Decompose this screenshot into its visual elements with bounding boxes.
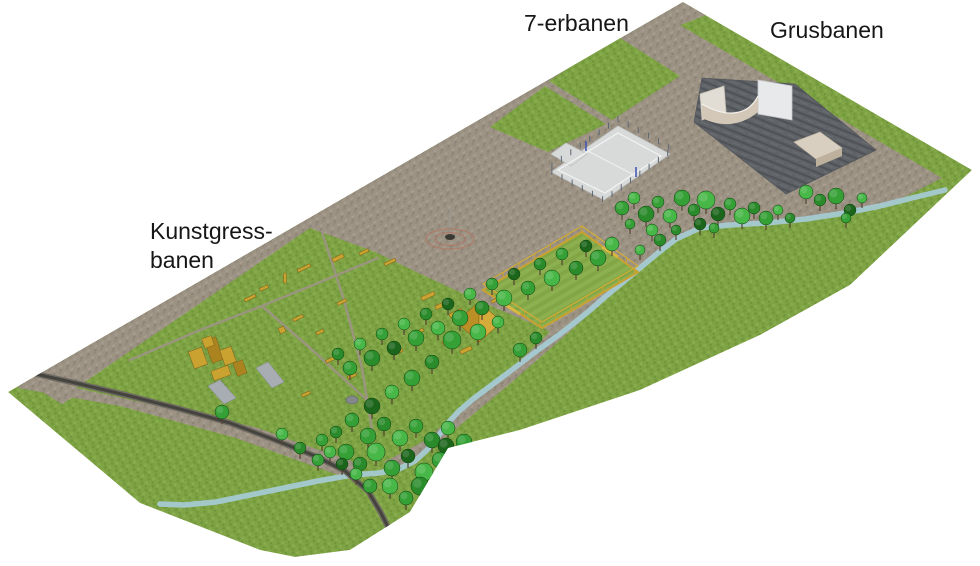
tree-highlight bbox=[400, 492, 407, 499]
tree-highlight bbox=[394, 432, 402, 440]
tree-highlight bbox=[509, 269, 515, 275]
tree-highlight bbox=[749, 203, 755, 209]
tree-highlight bbox=[487, 279, 493, 285]
tree-highlight bbox=[331, 427, 337, 433]
tree-highlight bbox=[664, 210, 671, 217]
tree-highlight bbox=[629, 193, 635, 199]
tree-highlight bbox=[640, 208, 648, 216]
tree-highlight bbox=[655, 235, 661, 241]
tree-highlight bbox=[445, 333, 454, 342]
tree-highlight bbox=[472, 326, 480, 334]
tree-highlight bbox=[546, 272, 554, 280]
tree-highlight bbox=[736, 210, 744, 218]
tree-highlight bbox=[313, 455, 319, 461]
label-artificial-turf-field: Kunstgress- banen bbox=[150, 217, 273, 276]
tree-highlight bbox=[465, 289, 471, 295]
tree-highlight bbox=[672, 226, 677, 231]
tree-highlight bbox=[653, 197, 659, 203]
tree-highlight bbox=[647, 225, 653, 231]
tree-highlight bbox=[830, 190, 838, 198]
tree-highlight bbox=[340, 446, 348, 454]
tree-highlight bbox=[421, 309, 427, 315]
tree bbox=[457, 471, 471, 485]
tree-highlight bbox=[399, 319, 405, 325]
tree-highlight bbox=[354, 458, 361, 465]
tree-highlight bbox=[355, 339, 361, 345]
tree-highlight bbox=[366, 400, 374, 408]
label-seven-a-side-field-text: 7-erbanen bbox=[524, 10, 629, 36]
tree-highlight bbox=[710, 224, 715, 229]
scene-svg bbox=[0, 0, 980, 566]
tree-highlight bbox=[362, 430, 370, 438]
tree-highlight bbox=[378, 418, 385, 425]
tree-highlight bbox=[413, 479, 422, 488]
tree-highlight bbox=[384, 480, 392, 488]
tree-highlight bbox=[464, 458, 472, 466]
tree-highlight bbox=[774, 206, 779, 211]
tree-highlight bbox=[426, 356, 433, 363]
tree-highlight bbox=[676, 192, 684, 200]
label-artificial-turf-field-line2: banen bbox=[150, 246, 273, 275]
tree-highlight bbox=[402, 450, 409, 457]
scene-layers bbox=[8, 2, 972, 557]
tree-highlight bbox=[450, 470, 457, 477]
label-gravel-field-text: Grusbanen bbox=[770, 17, 884, 43]
tree-highlight bbox=[366, 352, 374, 360]
tree-highlight bbox=[346, 414, 353, 421]
tree-highlight bbox=[410, 420, 417, 427]
tree-highlight bbox=[725, 199, 731, 205]
tree-highlight bbox=[800, 186, 807, 193]
playground-item bbox=[284, 273, 287, 283]
tree-highlight bbox=[344, 362, 351, 369]
tree-highlight bbox=[417, 465, 426, 474]
tree-highlight bbox=[446, 482, 453, 489]
tree bbox=[462, 456, 478, 472]
tree-highlight bbox=[592, 252, 600, 260]
tree-highlight bbox=[531, 333, 537, 339]
tree-highlight bbox=[277, 429, 283, 435]
tree-highlight bbox=[351, 469, 357, 475]
tree-highlight bbox=[216, 406, 223, 413]
label-artificial-turf-field-line1: Kunstgress- bbox=[150, 217, 273, 246]
tree-highlight bbox=[386, 386, 393, 393]
tree-highlight bbox=[535, 259, 541, 265]
tree-highlight bbox=[440, 440, 448, 448]
tree-highlight bbox=[472, 446, 479, 453]
tree-highlight bbox=[454, 312, 462, 320]
tree-highlight bbox=[842, 214, 847, 219]
tree-highlight bbox=[626, 220, 631, 225]
tree-highlight bbox=[377, 329, 383, 335]
tree-highlight bbox=[815, 195, 821, 201]
tree-highlight bbox=[636, 246, 641, 251]
tree-highlight bbox=[760, 212, 767, 219]
tree-highlight bbox=[443, 299, 449, 305]
tree-highlight bbox=[434, 454, 442, 462]
tree-highlight bbox=[442, 422, 449, 429]
tree bbox=[428, 492, 444, 508]
tree-highlight bbox=[430, 494, 438, 502]
tree-highlight bbox=[699, 193, 708, 202]
tree-highlight bbox=[616, 202, 623, 209]
halfpipe-tower bbox=[758, 80, 792, 120]
carousel-hub bbox=[445, 234, 455, 240]
tree-highlight bbox=[712, 208, 719, 215]
tree-highlight bbox=[498, 292, 506, 300]
tree bbox=[445, 481, 459, 495]
tree-highlight bbox=[458, 472, 465, 479]
tree bbox=[449, 469, 463, 483]
tree-highlight bbox=[386, 462, 394, 470]
tree-highlight bbox=[522, 282, 529, 289]
tree-highlight bbox=[337, 459, 343, 465]
tree-highlight bbox=[432, 322, 439, 329]
tree-highlight bbox=[581, 241, 587, 247]
tree-highlight bbox=[325, 447, 331, 453]
tree-highlight bbox=[406, 372, 414, 380]
tree-highlight bbox=[333, 349, 339, 355]
tree-highlight bbox=[476, 302, 483, 309]
label-seven-a-side-field: 7-erbanen bbox=[524, 9, 629, 38]
tree-highlight bbox=[410, 332, 418, 340]
tree-highlight bbox=[493, 317, 499, 323]
tree-highlight bbox=[845, 205, 851, 211]
tree-highlight bbox=[295, 443, 301, 449]
tree-highlight bbox=[458, 436, 466, 444]
label-gravel-field: Grusbanen bbox=[770, 16, 884, 45]
tree-highlight bbox=[317, 435, 323, 441]
tree-highlight bbox=[514, 344, 521, 351]
tree-highlight bbox=[426, 434, 434, 442]
tree-highlight bbox=[606, 238, 613, 245]
tree-highlight bbox=[364, 480, 371, 487]
park-site-plan: 7-erbanen Grusbanen Kunstgress- banen bbox=[0, 0, 980, 566]
tree-highlight bbox=[695, 219, 701, 225]
tree-highlight bbox=[786, 214, 791, 219]
tree-highlight bbox=[369, 445, 378, 454]
tree-highlight bbox=[689, 205, 695, 211]
tree bbox=[471, 445, 485, 459]
boulder bbox=[346, 396, 358, 404]
tree-highlight bbox=[570, 262, 577, 269]
tree-highlight bbox=[388, 342, 395, 349]
tree-highlight bbox=[858, 194, 863, 199]
tree-highlight bbox=[557, 249, 563, 255]
